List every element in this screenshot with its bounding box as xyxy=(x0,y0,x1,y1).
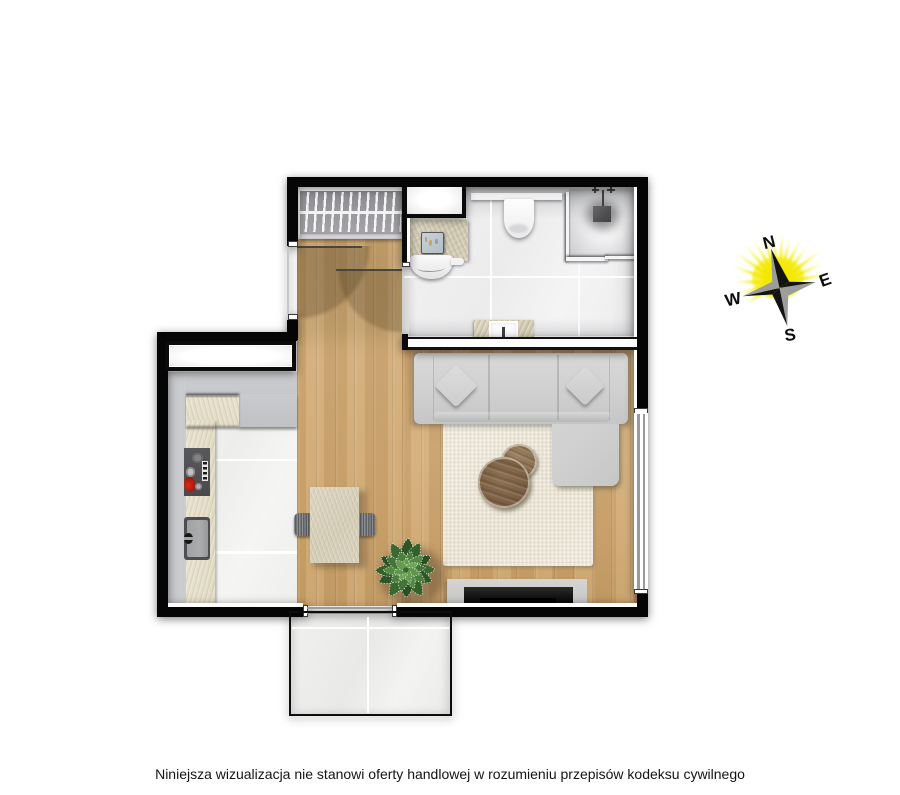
svg-text:N: N xyxy=(761,232,778,253)
svg-text:E: E xyxy=(817,269,834,291)
svg-text:W: W xyxy=(723,288,744,310)
svg-text:S: S xyxy=(783,325,797,345)
